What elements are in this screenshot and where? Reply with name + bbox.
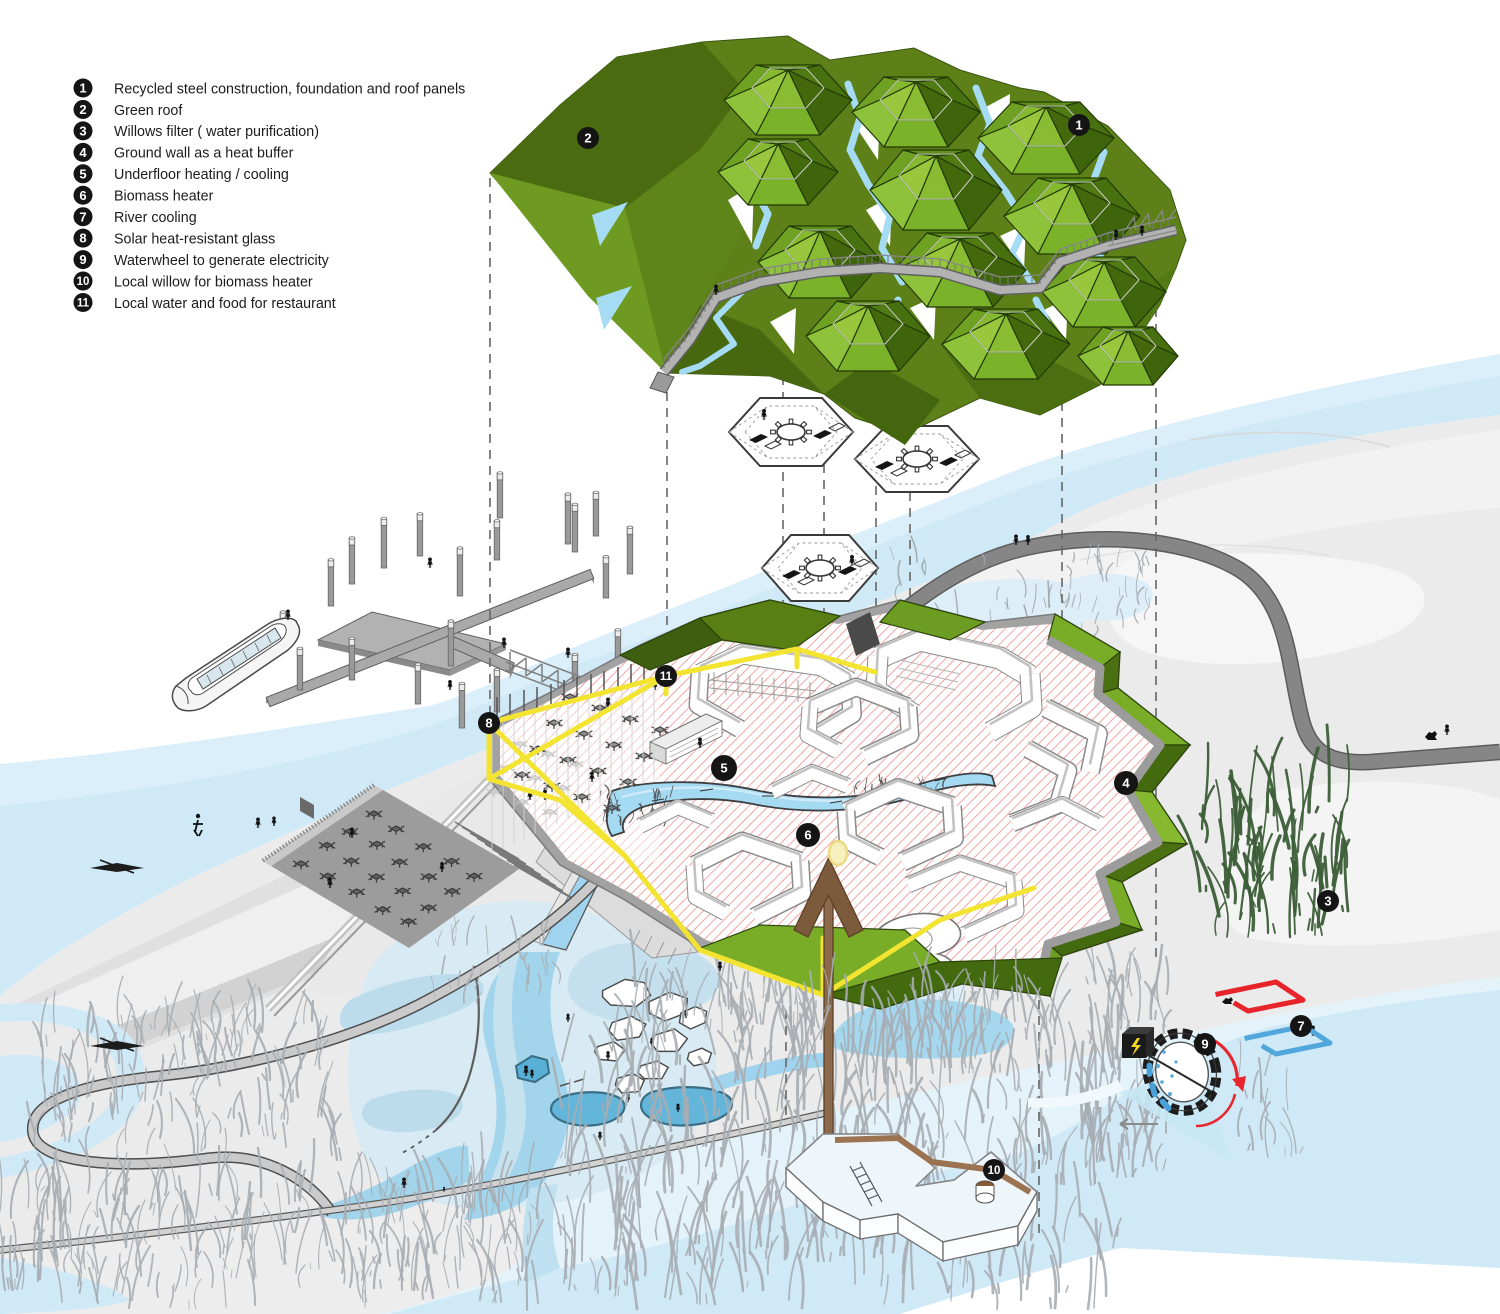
svg-text:8: 8 [485,716,492,731]
svg-text:11: 11 [660,671,673,683]
svg-text:6: 6 [79,188,86,203]
svg-text:7: 7 [79,209,86,224]
svg-text:8: 8 [79,231,86,246]
svg-text:1: 1 [1075,118,1082,133]
svg-text:Local willow for biomass heate: Local willow for biomass heater [114,274,313,290]
svg-text:3: 3 [79,123,86,138]
svg-text:9: 9 [1201,1037,1208,1052]
svg-text:2: 2 [79,102,86,117]
svg-text:10: 10 [77,276,90,288]
svg-text:Local water and food for resta: Local water and food for restaurant [114,296,336,312]
svg-text:10: 10 [988,1165,1001,1177]
svg-text:4: 4 [79,145,87,160]
svg-text:Biomass heater: Biomass heater [114,189,214,205]
svg-text:Waterwheel to generate electri: Waterwheel to generate electricity [114,253,330,269]
svg-text:Ground wall as a heat buffer: Ground wall as a heat buffer [114,146,294,162]
svg-text:Recycled steel construction, f: Recycled steel construction, foundation … [114,81,465,97]
svg-text:6: 6 [804,828,811,843]
svg-text:Solar heat-resistant glass: Solar heat-resistant glass [114,232,275,248]
svg-text:5: 5 [720,761,727,776]
svg-text:2: 2 [584,131,591,146]
svg-text:Underfloor heating / cooling: Underfloor heating / cooling [114,167,289,183]
svg-text:11: 11 [77,298,90,310]
svg-text:1: 1 [79,81,86,96]
svg-text:River cooling: River cooling [114,210,197,226]
svg-text:4: 4 [1122,776,1130,791]
svg-text:Green roof: Green roof [114,103,182,119]
svg-text:7: 7 [1297,1019,1304,1034]
svg-text:9: 9 [79,252,86,267]
svg-text:3: 3 [1324,894,1331,909]
svg-text:Willows filter ( water purific: Willows filter ( water purification) [114,124,319,140]
svg-text:5: 5 [79,166,86,181]
